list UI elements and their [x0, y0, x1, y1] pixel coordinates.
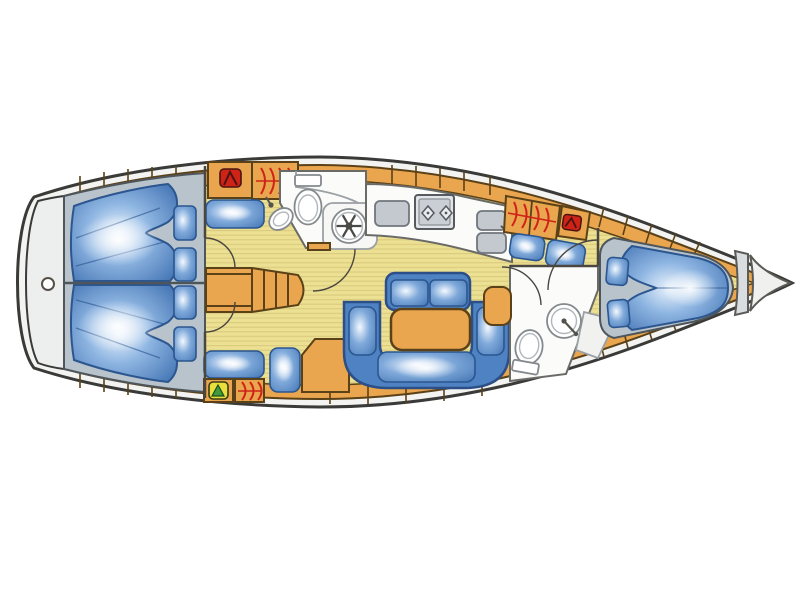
yacht-floor-plan: Stern transom platform Aft double cabin …	[0, 0, 800, 600]
pillow	[174, 248, 196, 281]
gear-locker-icon	[209, 382, 228, 399]
clothes-red-icon	[562, 214, 582, 231]
pillow	[174, 327, 196, 361]
duvet-highlight	[78, 300, 158, 352]
salon-table	[391, 309, 470, 350]
chart-table	[302, 339, 349, 392]
settee-highlight	[394, 357, 458, 379]
pillow	[174, 206, 196, 240]
bench-highlight	[216, 356, 252, 372]
forward-seat	[509, 233, 546, 261]
sink-icon	[547, 304, 581, 338]
nav-seat-highlight	[276, 354, 294, 382]
bow-locker: Anchor locker	[735, 251, 790, 315]
clothes-red-icon	[220, 169, 241, 187]
stove-icon	[415, 195, 454, 229]
settee-backrest	[484, 287, 511, 325]
toilet-icon	[295, 175, 322, 225]
pillow	[606, 257, 629, 286]
bench-cushion	[391, 280, 428, 306]
anchor-well	[750, 255, 790, 311]
bench-highlight	[217, 205, 253, 221]
companionway-steps: Companionway steps	[206, 268, 304, 312]
transom-fitting	[42, 278, 54, 290]
bench-cushion	[430, 280, 467, 306]
duvet-highlight	[662, 269, 718, 307]
settee-cushion-left	[349, 307, 376, 355]
pillow	[607, 299, 630, 328]
aft-wardrobe-block-bottom	[204, 351, 264, 402]
bow-bulkhead	[735, 251, 748, 315]
fridge-icon	[375, 201, 409, 226]
door-sill	[308, 243, 330, 250]
pillow	[174, 286, 196, 319]
transom-platform: Stern transom platform	[26, 196, 64, 369]
duvet-highlight	[78, 214, 158, 266]
